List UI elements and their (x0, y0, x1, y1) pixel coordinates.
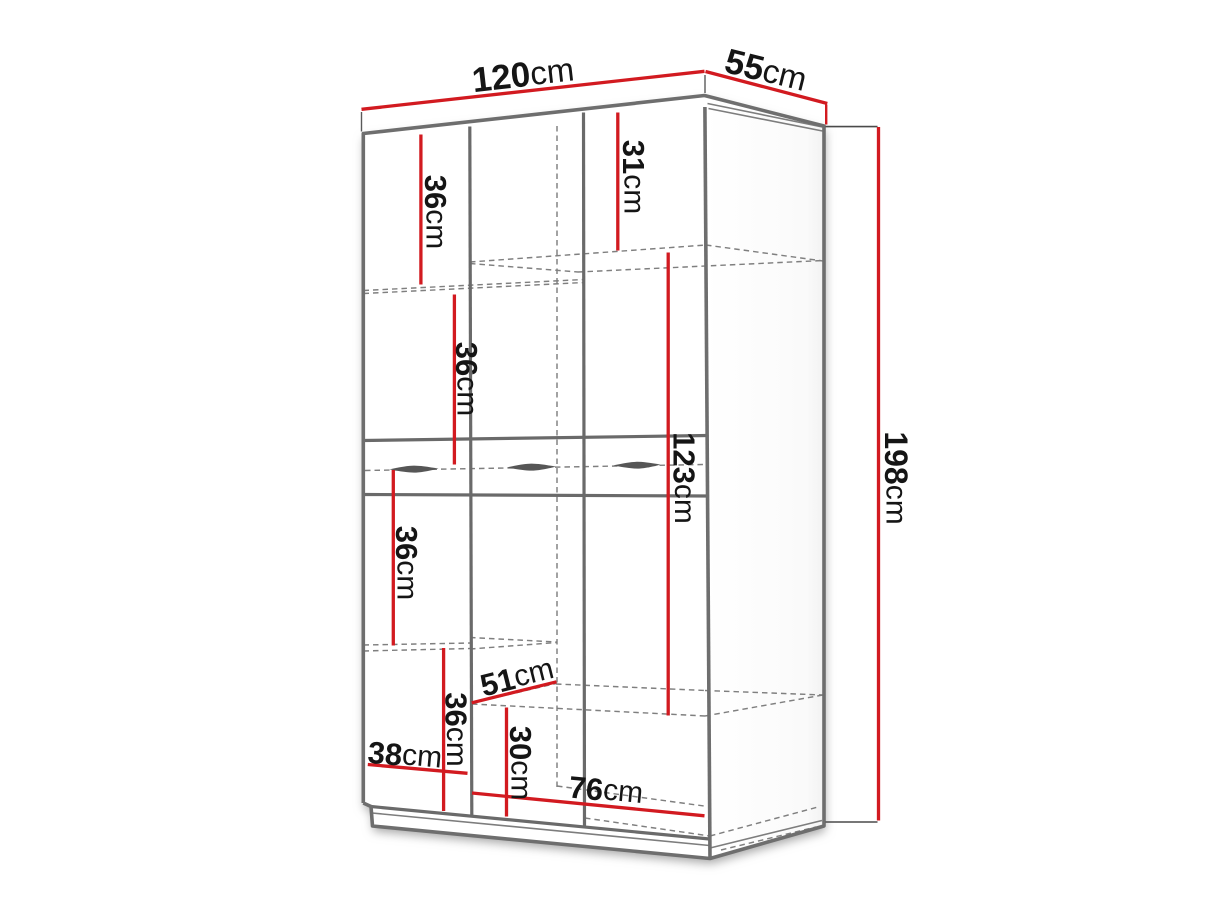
svg-text:30cm: 30cm (504, 726, 539, 800)
svg-text:36cm: 36cm (419, 175, 454, 249)
svg-text:36cm: 36cm (439, 692, 474, 766)
svg-text:55cm: 55cm (721, 41, 811, 99)
svg-text:76cm: 76cm (567, 769, 644, 811)
svg-text:36cm: 36cm (390, 526, 425, 600)
svg-text:198cm: 198cm (878, 431, 914, 524)
svg-text:123cm: 123cm (667, 432, 702, 524)
svg-text:31cm: 31cm (617, 140, 652, 214)
svg-text:120cm: 120cm (470, 49, 576, 99)
svg-text:38cm: 38cm (366, 734, 443, 775)
svg-text:36cm: 36cm (450, 342, 485, 416)
